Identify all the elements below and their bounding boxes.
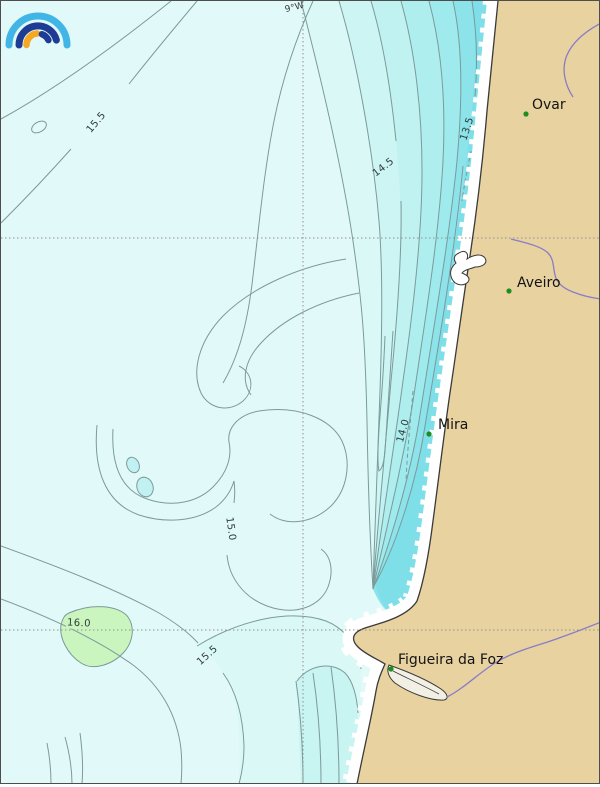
city-dot-figueira <box>388 666 393 671</box>
city-dot-mira <box>426 431 431 436</box>
screenshot-root: 9°W 15.5 14.5 13.5 14.0 15.0 16.0 15.5 O… <box>0 0 600 787</box>
city-label-mira: Mira <box>438 418 468 432</box>
city-label-aveiro: Aveiro <box>517 276 561 290</box>
logo-arc-orange <box>26 34 37 46</box>
ipma-logo <box>1 1 77 49</box>
contour-label-15-0: 15.0 <box>223 516 236 541</box>
map-canvas <box>1 1 600 784</box>
city-dot-aveiro <box>506 288 511 293</box>
contour-label-16-0: 16.0 <box>66 618 92 629</box>
city-label-figueira-da-foz: Figueira da Foz <box>398 653 503 667</box>
city-dot-ovar <box>523 111 528 116</box>
map-figure: 9°W 15.5 14.5 13.5 14.0 15.0 16.0 15.5 O… <box>0 0 600 784</box>
city-label-ovar: Ovar <box>532 98 566 112</box>
logo-arc-darkblue-stub <box>42 34 49 40</box>
